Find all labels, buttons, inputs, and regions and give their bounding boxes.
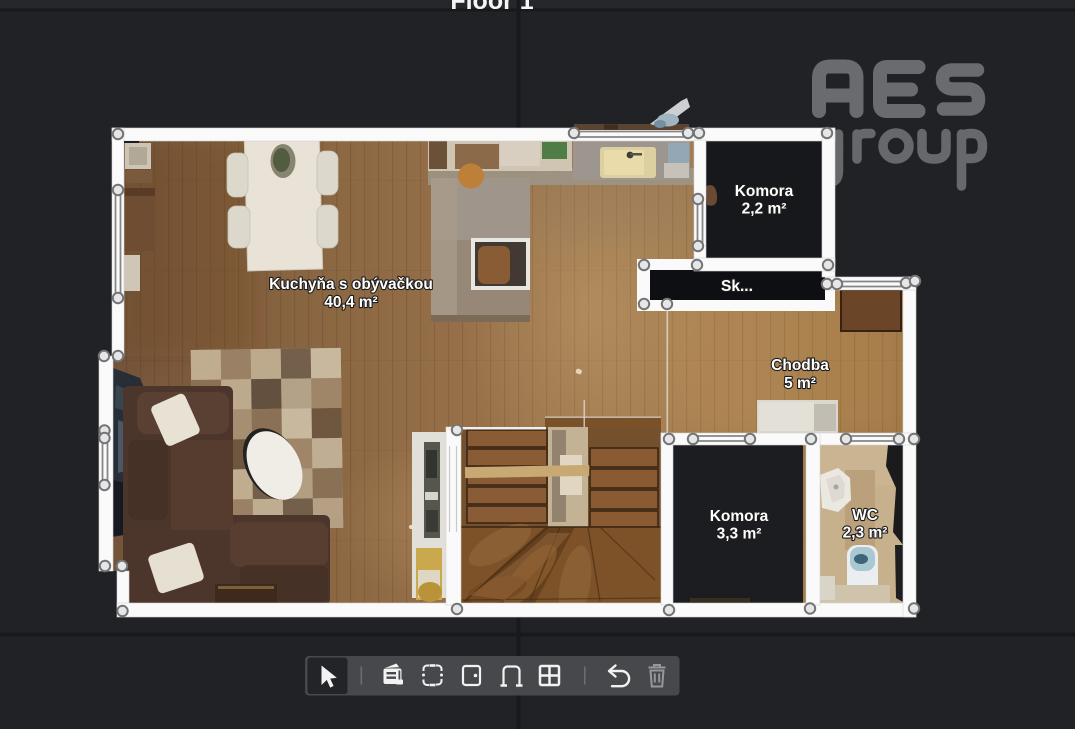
svg-text:2,3 m²: 2,3 m² bbox=[843, 525, 888, 542]
svg-text:2,2 m²: 2,2 m² bbox=[742, 201, 787, 218]
svg-text:WC: WC bbox=[852, 507, 878, 524]
svg-text:3,3 m²: 3,3 m² bbox=[717, 526, 762, 543]
svg-text:Sk...: Sk... bbox=[721, 278, 753, 295]
svg-text:Komora: Komora bbox=[735, 183, 794, 200]
svg-text:Chodba: Chodba bbox=[771, 357, 829, 374]
svg-text:Floor 1: Floor 1 bbox=[450, 0, 533, 15]
svg-text:5 m²: 5 m² bbox=[784, 375, 816, 392]
svg-text:Kuchyňa s obývačkou: Kuchyňa s obývačkou bbox=[269, 276, 433, 293]
svg-text:40,4 m²: 40,4 m² bbox=[324, 294, 377, 311]
svg-text:Komora: Komora bbox=[710, 508, 769, 525]
